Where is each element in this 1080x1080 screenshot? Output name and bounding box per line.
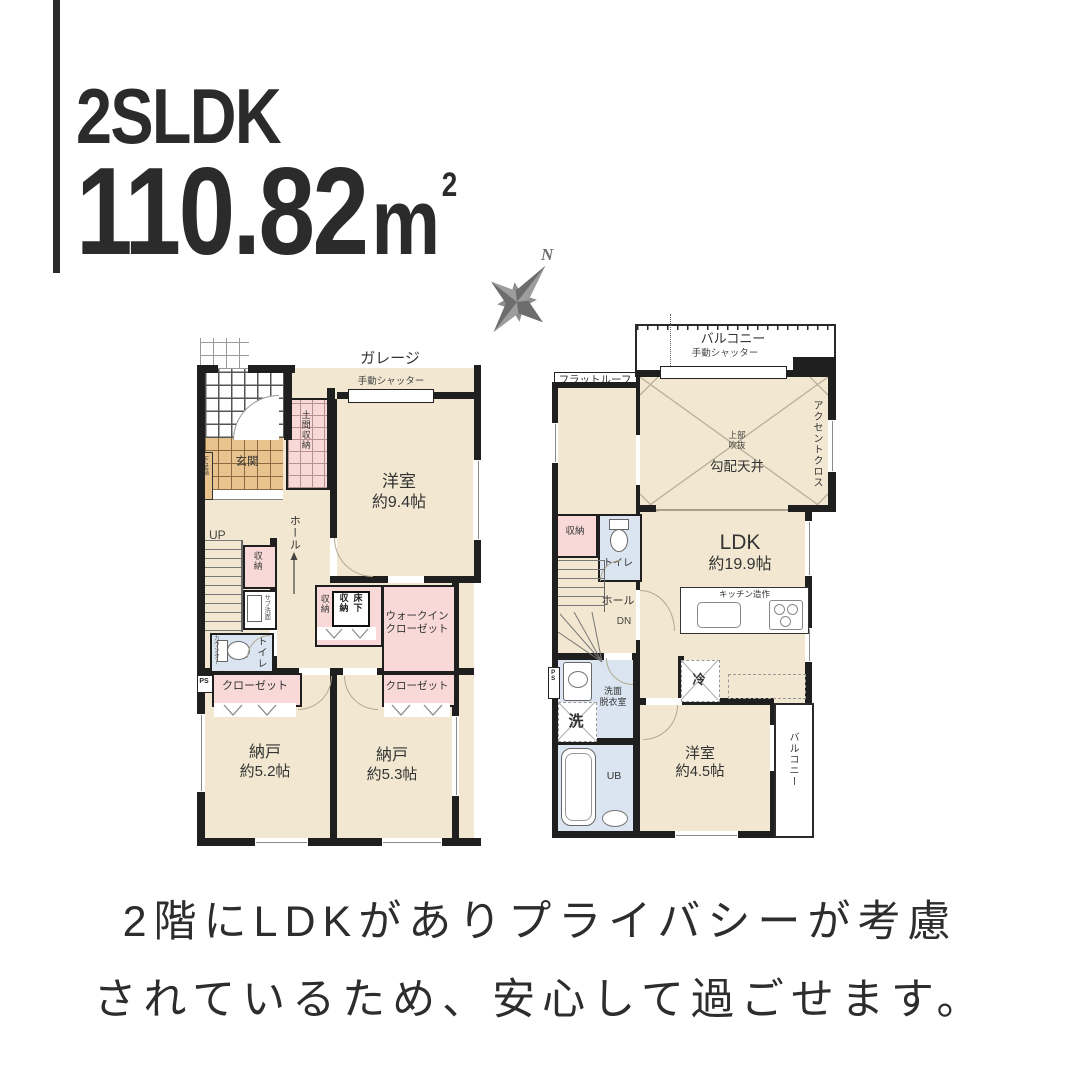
washbasin-2f xyxy=(563,662,592,701)
center-storage-label: 収納 xyxy=(319,594,330,614)
accent-cloth-label: アクセントクロス xyxy=(810,400,822,488)
underfloor-label-col1: 床下 xyxy=(352,593,365,625)
shutter-symbol-2f xyxy=(660,366,787,379)
basin-bowl xyxy=(568,671,588,688)
bathtub xyxy=(561,748,596,826)
underfloor-storage-box: 床下 収納 xyxy=(332,591,370,627)
window xyxy=(382,838,442,846)
ps-label-1f: PS xyxy=(197,678,211,686)
kitchen-counter-label: キッチン造作 xyxy=(681,589,808,599)
door-opening xyxy=(646,698,682,705)
walk-in-closet-label: ウォークインクローゼット xyxy=(380,610,454,635)
genkan-label: 玄関 xyxy=(217,456,277,470)
genkan-step xyxy=(205,490,283,500)
western-room-2f-label: 洋室 約4.5帖 xyxy=(655,745,745,781)
wall-segment xyxy=(788,505,812,512)
sub-basin-label: サブ洗面 xyxy=(262,594,270,620)
toilet-bowl-2f xyxy=(610,529,628,552)
counter-label: カウンター xyxy=(211,635,218,665)
stair-direction-arrow-icon xyxy=(289,552,299,594)
kitchen-counter: キッチン造作 xyxy=(680,587,809,634)
down-label: DN xyxy=(604,616,644,628)
door-opening xyxy=(388,576,424,583)
window xyxy=(675,831,738,838)
doma-storage-label: 土間収納 xyxy=(300,410,311,450)
fridge-label: 冷 xyxy=(682,672,716,688)
kitchen-sink xyxy=(697,602,741,628)
wall-segment xyxy=(474,365,481,399)
floor-plan-flyer: 2SLDK 110.82 m 2 N N 下足箱 玄関 土間収納 xyxy=(0,0,1080,1080)
hall-closet-label: 収納 xyxy=(252,551,263,571)
window xyxy=(473,460,482,540)
balcony-top-label: バルコニー xyxy=(668,331,798,347)
balcony-shutter-label: 手動シャッター xyxy=(670,348,780,359)
floor2-plan: バルコニー 手動シャッター フラットルーフ 上部吹抜 勾配天井 アクセントクロス xyxy=(548,320,840,846)
storage-2f-label: 収納 xyxy=(556,526,594,537)
closet-left-label: クローゼット xyxy=(212,680,298,693)
kitchen-stove xyxy=(769,600,803,630)
burner-icon xyxy=(774,604,785,615)
upper-room xyxy=(558,388,640,512)
hanger-mark-icon xyxy=(257,704,277,716)
garage-shutter-symbol xyxy=(348,389,434,403)
staircase-up xyxy=(205,540,243,632)
area-row: 110.82 m 2 xyxy=(76,150,457,274)
garage-label: ガレージ xyxy=(345,350,435,368)
wall-segment xyxy=(793,357,836,371)
window xyxy=(828,420,836,472)
garage-shutter-label: 手動シャッター xyxy=(346,376,436,387)
storeroom-right-label: 納戸 約5.3帖 xyxy=(347,746,437,784)
hanger-mark-icon xyxy=(325,628,343,639)
window xyxy=(255,838,308,846)
washer-label: 洗 xyxy=(559,713,593,731)
furniture-dashed-outline xyxy=(728,674,806,699)
wall-segment xyxy=(330,668,337,838)
ps-label-2f: PS xyxy=(549,670,556,682)
hall-label: ホール xyxy=(287,515,300,551)
storeroom-left-label: 納戸 約5.2帖 xyxy=(220,743,310,781)
washer-space: 洗 xyxy=(558,702,597,742)
svg-text:N: N xyxy=(540,245,554,264)
refrigerator-space: 冷 xyxy=(681,660,720,702)
area-value: 110.82 xyxy=(76,150,367,274)
title-accent-bar xyxy=(53,0,60,273)
window xyxy=(552,423,558,463)
caption-line1: 2階にLDKがありプライバシーが考慮 xyxy=(0,897,1080,949)
area-unit: m xyxy=(372,175,441,269)
area-unit-sup: 2 xyxy=(442,166,458,205)
hanger-mark-icon xyxy=(423,704,443,716)
burner-icon xyxy=(787,604,798,615)
window xyxy=(197,714,205,792)
window xyxy=(452,716,459,796)
wall-segment xyxy=(552,382,640,388)
underfloor-label-col2: 収納 xyxy=(338,593,351,625)
balcony-right-label: バルコニー xyxy=(786,732,798,787)
ldk-label: LDK 約19.9帖 xyxy=(695,530,785,574)
hall-2f-label: ホール xyxy=(590,595,646,608)
door-opening xyxy=(343,668,377,675)
boundary-dotted-line xyxy=(670,314,671,366)
room-boundary-line xyxy=(656,509,788,511)
bath-basin xyxy=(602,810,628,827)
wall-segment xyxy=(284,368,292,440)
hanger-mark-icon xyxy=(223,704,243,716)
sloped-ceiling-label: 勾配天井 xyxy=(692,459,782,475)
western-room-label: 洋室 約9.4帖 xyxy=(354,472,444,513)
wall-segment xyxy=(640,505,656,512)
unit-bath-label: UB xyxy=(598,770,630,783)
window xyxy=(805,521,812,576)
caption-line2: されているため、安心して過ごせます。 xyxy=(0,975,1080,1027)
door-opening xyxy=(636,435,640,485)
hanger-mark-icon xyxy=(351,628,369,639)
closet-right-label: クローゼット xyxy=(382,680,452,693)
wall-segment xyxy=(633,653,640,838)
door-opening xyxy=(299,668,333,675)
burner-icon xyxy=(780,616,791,627)
center-storage-room: 収納 床下 収納 xyxy=(315,585,383,647)
floor1-plan: 下足箱 玄関 土間収納 ガレージ 手動シャッター xyxy=(197,338,481,846)
staircase-winder xyxy=(558,612,604,664)
balcony-railing xyxy=(637,324,830,330)
sub-basin-fixture xyxy=(247,595,262,622)
bathtub-inner xyxy=(565,753,592,821)
void-label: 上部吹抜 xyxy=(712,430,762,450)
washroom-label: 洗面脱衣室 xyxy=(592,686,634,708)
hanger-mark-icon xyxy=(391,704,411,716)
